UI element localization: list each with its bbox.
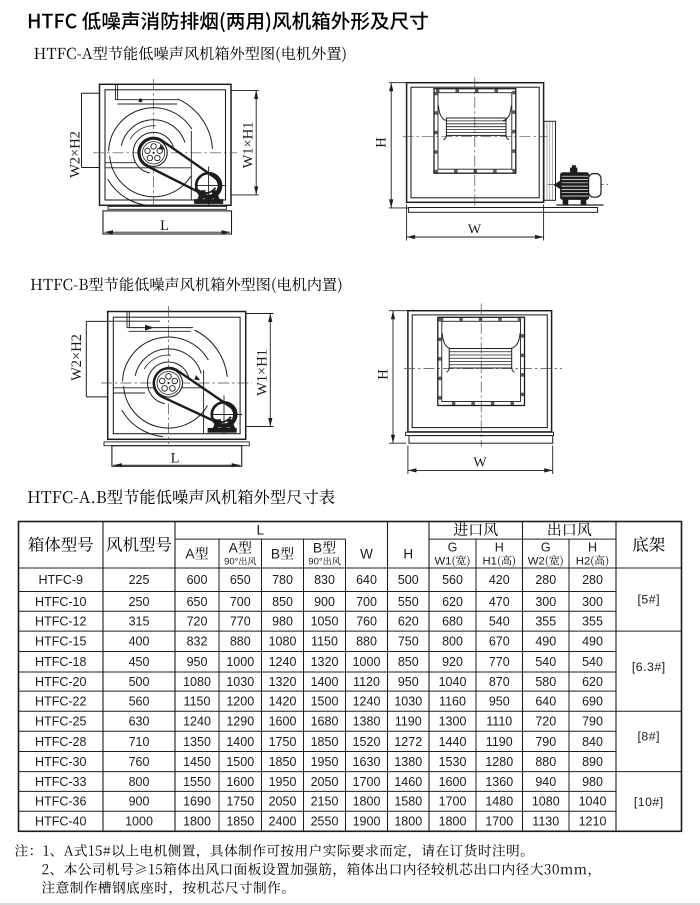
svg-text:W2: W2 — [528, 556, 545, 568]
svg-text:W1×H1: W1×H1 — [255, 349, 271, 396]
svg-text:1240: 1240 — [353, 695, 381, 709]
svg-text:[6.3#]: [6.3#] — [632, 660, 666, 674]
svg-text:870: 870 — [489, 675, 510, 689]
svg-text:1280: 1280 — [485, 755, 513, 769]
svg-text:1700: 1700 — [353, 775, 381, 789]
svg-text:900: 900 — [314, 595, 335, 609]
svg-text:1550: 1550 — [183, 775, 211, 789]
svg-text:W: W — [360, 547, 373, 562]
svg-text:1750: 1750 — [269, 735, 297, 749]
svg-text:1700: 1700 — [439, 795, 467, 809]
svg-text:1600: 1600 — [269, 715, 297, 729]
svg-text:1290: 1290 — [226, 715, 254, 729]
svg-text:HTFC-10: HTFC-10 — [35, 595, 86, 609]
svg-text:HTFC-36: HTFC-36 — [35, 795, 86, 809]
svg-text:800: 800 — [442, 635, 463, 649]
svg-text:L: L — [256, 523, 264, 538]
svg-text:90°: 90° — [224, 557, 239, 568]
svg-text:W: W — [468, 222, 482, 237]
svg-text:H1: H1 — [483, 556, 497, 568]
svg-text:540: 540 — [489, 615, 510, 629]
svg-text:900: 900 — [129, 795, 150, 809]
svg-text:880: 880 — [535, 755, 556, 769]
svg-text:1600: 1600 — [439, 775, 467, 789]
svg-text:790: 790 — [582, 715, 603, 729]
svg-text:950: 950 — [489, 695, 510, 709]
svg-text:880: 880 — [356, 635, 377, 649]
svg-text:720: 720 — [187, 615, 208, 629]
svg-text:450: 450 — [129, 655, 150, 669]
svg-text:355: 355 — [582, 615, 603, 629]
svg-text:1750: 1750 — [226, 795, 254, 809]
svg-text:850: 850 — [272, 595, 293, 609]
svg-text:1680: 1680 — [311, 715, 339, 729]
svg-text:[8#]: [8#] — [637, 729, 660, 743]
svg-text:950: 950 — [187, 655, 208, 669]
svg-text:2550: 2550 — [311, 815, 339, 829]
svg-text:980: 980 — [272, 615, 293, 629]
svg-text:1210: 1210 — [579, 815, 607, 829]
svg-text:W2×H2: W2×H2 — [69, 334, 85, 381]
svg-text:560: 560 — [129, 695, 150, 709]
svg-text:700: 700 — [230, 595, 251, 609]
svg-text:1190: 1190 — [486, 735, 513, 749]
svg-text:710: 710 — [129, 735, 150, 749]
svg-text:300: 300 — [535, 595, 556, 609]
svg-text:1030: 1030 — [226, 675, 254, 689]
svg-text:G: G — [541, 541, 551, 555]
svg-text:880: 880 — [230, 635, 251, 649]
svg-text:1030: 1030 — [394, 695, 422, 709]
svg-text:840: 840 — [582, 735, 603, 749]
svg-text:920: 920 — [442, 655, 463, 669]
svg-text:720: 720 — [535, 715, 556, 729]
svg-text:280: 280 — [582, 573, 603, 587]
svg-text:1150: 1150 — [184, 695, 211, 709]
svg-text:H2: H2 — [576, 556, 590, 568]
svg-text:800: 800 — [129, 775, 150, 789]
svg-text:1450: 1450 — [183, 755, 211, 769]
svg-text:600: 600 — [187, 573, 208, 587]
svg-text:1800: 1800 — [183, 815, 211, 829]
svg-text:HTFC-20: HTFC-20 — [35, 675, 86, 689]
svg-text:400: 400 — [129, 635, 150, 649]
svg-text:HTFC-25: HTFC-25 — [35, 715, 86, 729]
svg-text:1950: 1950 — [311, 755, 339, 769]
svg-text:1160: 1160 — [439, 695, 466, 709]
svg-text:850: 850 — [398, 655, 419, 669]
svg-text:500: 500 — [129, 675, 150, 689]
svg-text:770: 770 — [230, 615, 251, 629]
svg-text:1400: 1400 — [311, 675, 339, 689]
svg-text:1500: 1500 — [226, 755, 254, 769]
svg-text:H: H — [376, 369, 392, 380]
svg-text:760: 760 — [356, 615, 377, 629]
svg-text:1040: 1040 — [439, 675, 467, 689]
svg-text:1800: 1800 — [394, 815, 422, 829]
svg-text:1080: 1080 — [269, 635, 297, 649]
svg-text:250: 250 — [129, 595, 150, 609]
svg-text:1480: 1480 — [485, 795, 513, 809]
svg-text:1420: 1420 — [269, 695, 297, 709]
svg-text:1690: 1690 — [183, 795, 211, 809]
svg-text:670: 670 — [489, 635, 510, 649]
svg-text:2050: 2050 — [311, 775, 339, 789]
svg-text:832: 832 — [187, 635, 208, 649]
svg-text:HTFC-18: HTFC-18 — [35, 655, 86, 669]
svg-text:640: 640 — [535, 695, 556, 709]
svg-text:1200: 1200 — [226, 695, 254, 709]
svg-text:1950: 1950 — [269, 775, 297, 789]
svg-text:690: 690 — [582, 695, 603, 709]
svg-text:HTFC-33: HTFC-33 — [35, 775, 86, 789]
svg-text:1360: 1360 — [485, 775, 513, 789]
svg-text:470: 470 — [489, 595, 510, 609]
svg-text:550: 550 — [398, 595, 419, 609]
svg-text:830: 830 — [314, 573, 335, 587]
svg-text:630: 630 — [129, 715, 150, 729]
svg-text:760: 760 — [129, 755, 150, 769]
svg-text:540: 540 — [535, 655, 556, 669]
svg-text:1300: 1300 — [439, 715, 467, 729]
svg-text:1050: 1050 — [311, 615, 339, 629]
svg-text:H: H — [588, 541, 597, 555]
svg-text:1040: 1040 — [579, 795, 607, 809]
svg-text:650: 650 — [187, 595, 208, 609]
svg-text:1460: 1460 — [394, 775, 422, 789]
svg-text:1150: 1150 — [311, 635, 338, 649]
svg-text:560: 560 — [442, 573, 463, 587]
svg-text:B: B — [271, 547, 280, 562]
svg-text:1190: 1190 — [395, 715, 422, 729]
svg-text:700: 700 — [356, 595, 377, 609]
svg-text:[5#]: [5#] — [637, 593, 660, 607]
svg-text:2400: 2400 — [269, 815, 297, 829]
svg-text:620: 620 — [582, 675, 603, 689]
svg-text:1800: 1800 — [353, 795, 381, 809]
svg-text:HTFC-12: HTFC-12 — [35, 615, 86, 629]
svg-text:1500: 1500 — [311, 695, 339, 709]
svg-text:640: 640 — [356, 573, 377, 587]
svg-text:1900: 1900 — [353, 815, 381, 829]
svg-text:1080: 1080 — [183, 675, 211, 689]
svg-text:580: 580 — [535, 675, 556, 689]
svg-text:W1×H1: W1×H1 — [241, 122, 257, 169]
svg-text:980: 980 — [582, 775, 603, 789]
svg-text:1600: 1600 — [226, 775, 254, 789]
svg-text:1120: 1120 — [353, 675, 380, 689]
svg-text:1080: 1080 — [532, 795, 560, 809]
svg-text:1580: 1580 — [394, 795, 422, 809]
svg-text:90°: 90° — [308, 557, 323, 568]
svg-text:A: A — [185, 547, 195, 562]
svg-text:1240: 1240 — [183, 715, 211, 729]
svg-text:HTFC-9: HTFC-9 — [39, 573, 83, 587]
svg-text:680: 680 — [442, 615, 463, 629]
svg-text:1800: 1800 — [439, 815, 467, 829]
svg-text:1850: 1850 — [269, 755, 297, 769]
svg-text:H: H — [403, 547, 413, 562]
svg-text:1110: 1110 — [486, 715, 512, 729]
svg-text:490: 490 — [535, 635, 556, 649]
svg-text:225: 225 — [129, 573, 150, 587]
svg-text:490: 490 — [582, 635, 603, 649]
svg-text:HTFC-15: HTFC-15 — [35, 635, 86, 649]
svg-text:L: L — [160, 218, 169, 234]
svg-text:A: A — [229, 541, 239, 556]
svg-text:420: 420 — [489, 573, 510, 587]
svg-text:540: 540 — [582, 655, 603, 669]
svg-text:HTFC-28: HTFC-28 — [35, 735, 86, 749]
svg-text:G: G — [448, 541, 458, 555]
svg-text:HTFC-30: HTFC-30 — [35, 755, 86, 769]
svg-text:1630: 1630 — [353, 755, 381, 769]
svg-text:HTFC-40: HTFC-40 — [35, 815, 86, 829]
svg-text:W2×H2: W2×H2 — [68, 131, 84, 178]
svg-text:300: 300 — [582, 595, 603, 609]
svg-text:1850: 1850 — [226, 815, 254, 829]
svg-text:1320: 1320 — [311, 655, 339, 669]
svg-text:1240: 1240 — [269, 655, 297, 669]
svg-text:1000: 1000 — [353, 655, 381, 669]
svg-text:770: 770 — [489, 655, 510, 669]
svg-text:2150: 2150 — [311, 795, 339, 809]
svg-text:2050: 2050 — [269, 795, 297, 809]
svg-text:1272: 1272 — [394, 735, 422, 749]
svg-text:650: 650 — [230, 573, 251, 587]
svg-text:1440: 1440 — [439, 735, 467, 749]
svg-text:1520: 1520 — [353, 735, 381, 749]
svg-text:890: 890 — [582, 755, 603, 769]
svg-text:[10#]: [10#] — [634, 795, 664, 809]
svg-text:1400: 1400 — [226, 735, 254, 749]
svg-text:315: 315 — [129, 615, 150, 629]
svg-text:L: L — [171, 450, 180, 466]
svg-text:1000: 1000 — [226, 655, 254, 669]
svg-text:500: 500 — [398, 573, 419, 587]
svg-text:1130: 1130 — [532, 815, 559, 829]
svg-text:1380: 1380 — [353, 715, 381, 729]
svg-text:B: B — [313, 541, 322, 556]
svg-text:620: 620 — [398, 615, 419, 629]
svg-text:W1: W1 — [435, 556, 452, 568]
svg-text:1700: 1700 — [485, 815, 513, 829]
svg-text:780: 780 — [272, 573, 293, 587]
svg-text:1380: 1380 — [394, 755, 422, 769]
svg-text:950: 950 — [398, 675, 419, 689]
svg-text:H: H — [495, 541, 504, 555]
svg-text:790: 790 — [535, 735, 556, 749]
svg-text:940: 940 — [535, 775, 556, 789]
svg-text:620: 620 — [442, 595, 463, 609]
svg-text:W: W — [473, 456, 487, 471]
svg-text:1350: 1350 — [183, 735, 211, 749]
svg-text:1530: 1530 — [439, 755, 467, 769]
svg-text:1320: 1320 — [269, 675, 297, 689]
svg-text:1850: 1850 — [311, 735, 339, 749]
svg-text:1000: 1000 — [125, 815, 153, 829]
svg-text:H: H — [374, 137, 390, 148]
svg-text:355: 355 — [535, 615, 556, 629]
svg-text:HTFC-22: HTFC-22 — [35, 695, 86, 709]
svg-text:280: 280 — [535, 573, 556, 587]
svg-text:750: 750 — [398, 635, 419, 649]
